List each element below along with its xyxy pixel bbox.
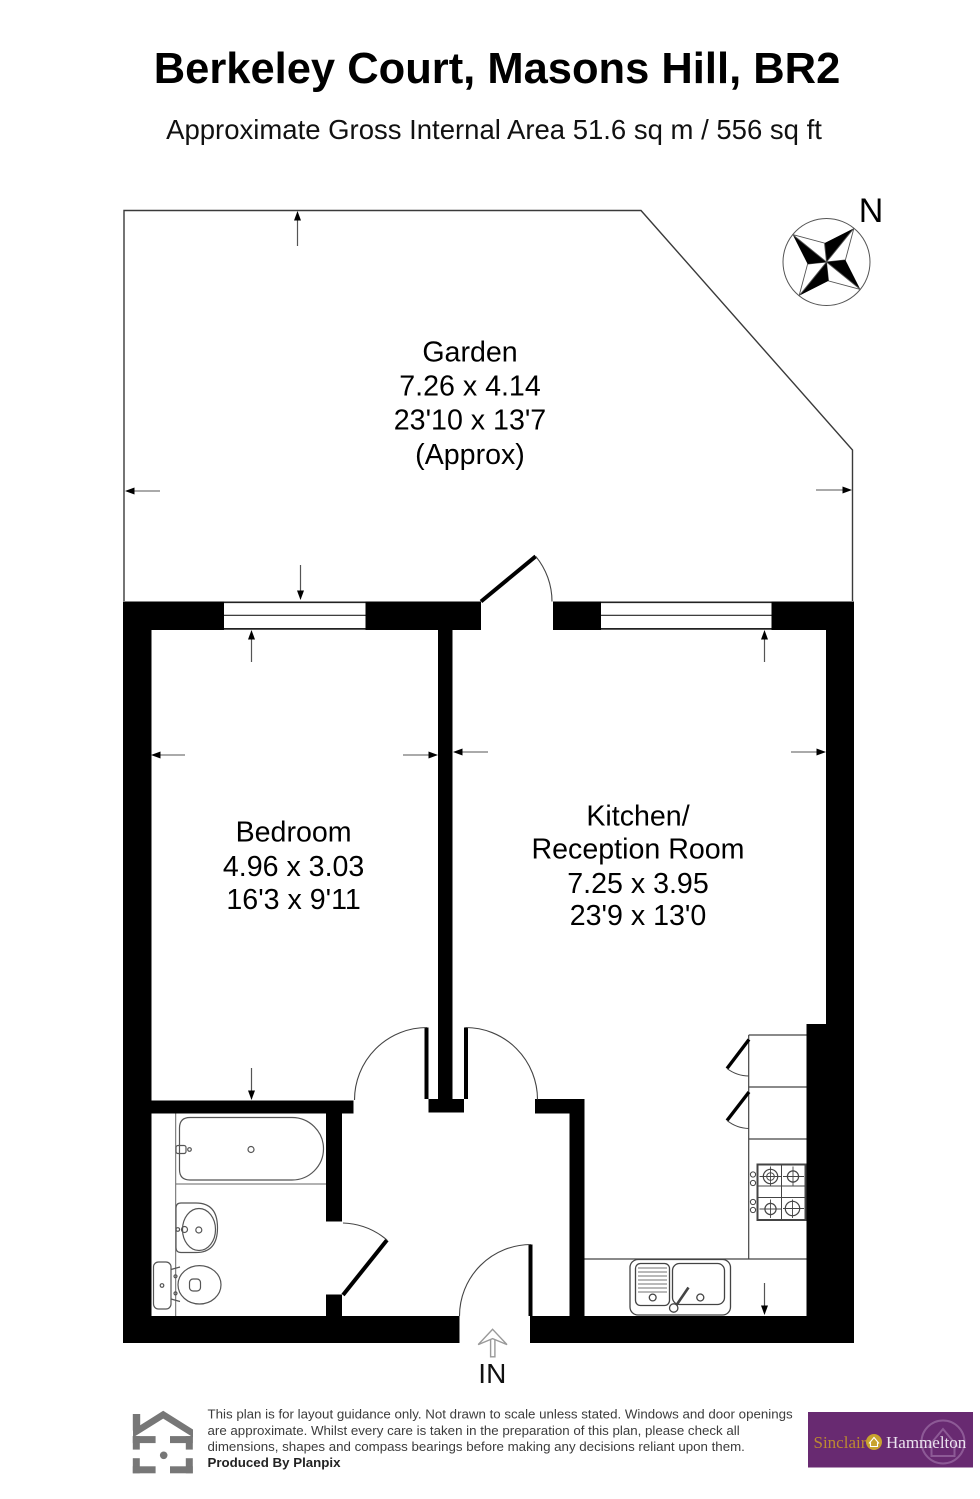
svg-text:Berkeley Court, Masons Hill, B: Berkeley Court, Masons Hill, BR2 [154,45,841,93]
svg-text:Hammelton: Hammelton [886,1433,967,1452]
svg-text:7.25 x 3.95: 7.25 x 3.95 [567,868,709,900]
svg-text:N: N [859,192,884,230]
svg-text:(Approx): (Approx) [415,439,525,471]
svg-text:23'9 x 13'0: 23'9 x 13'0 [570,900,707,932]
svg-text:7.26 x 4.14: 7.26 x 4.14 [399,371,541,403]
svg-text:Bedroom: Bedroom [236,817,352,849]
svg-text:Produced By Planpix: Produced By Planpix [208,1455,342,1470]
svg-text:Approximate Gross Internal Are: Approximate Gross Internal Area 51.6 sq … [166,114,822,145]
svg-text:Kitchen/: Kitchen/ [586,801,689,833]
svg-text:This plan is for layout guidan: This plan is for layout guidance only. N… [208,1407,793,1422]
svg-text:16'3 x 9'11: 16'3 x 9'11 [226,884,360,916]
svg-text:23'10 x 13'7: 23'10 x 13'7 [394,405,546,437]
svg-text:4.96 x 3.03: 4.96 x 3.03 [223,851,365,883]
svg-text:dimensions, shapes and compass: dimensions, shapes and compass bearings … [208,1439,745,1454]
svg-text:IN: IN [478,1358,506,1389]
svg-text:Garden: Garden [422,336,517,368]
svg-text:Reception Room: Reception Room [532,834,745,866]
svg-text:Sinclair: Sinclair [814,1433,867,1452]
svg-text:are approximate. Whilst every: are approximate. Whilst every care is ta… [208,1423,740,1438]
